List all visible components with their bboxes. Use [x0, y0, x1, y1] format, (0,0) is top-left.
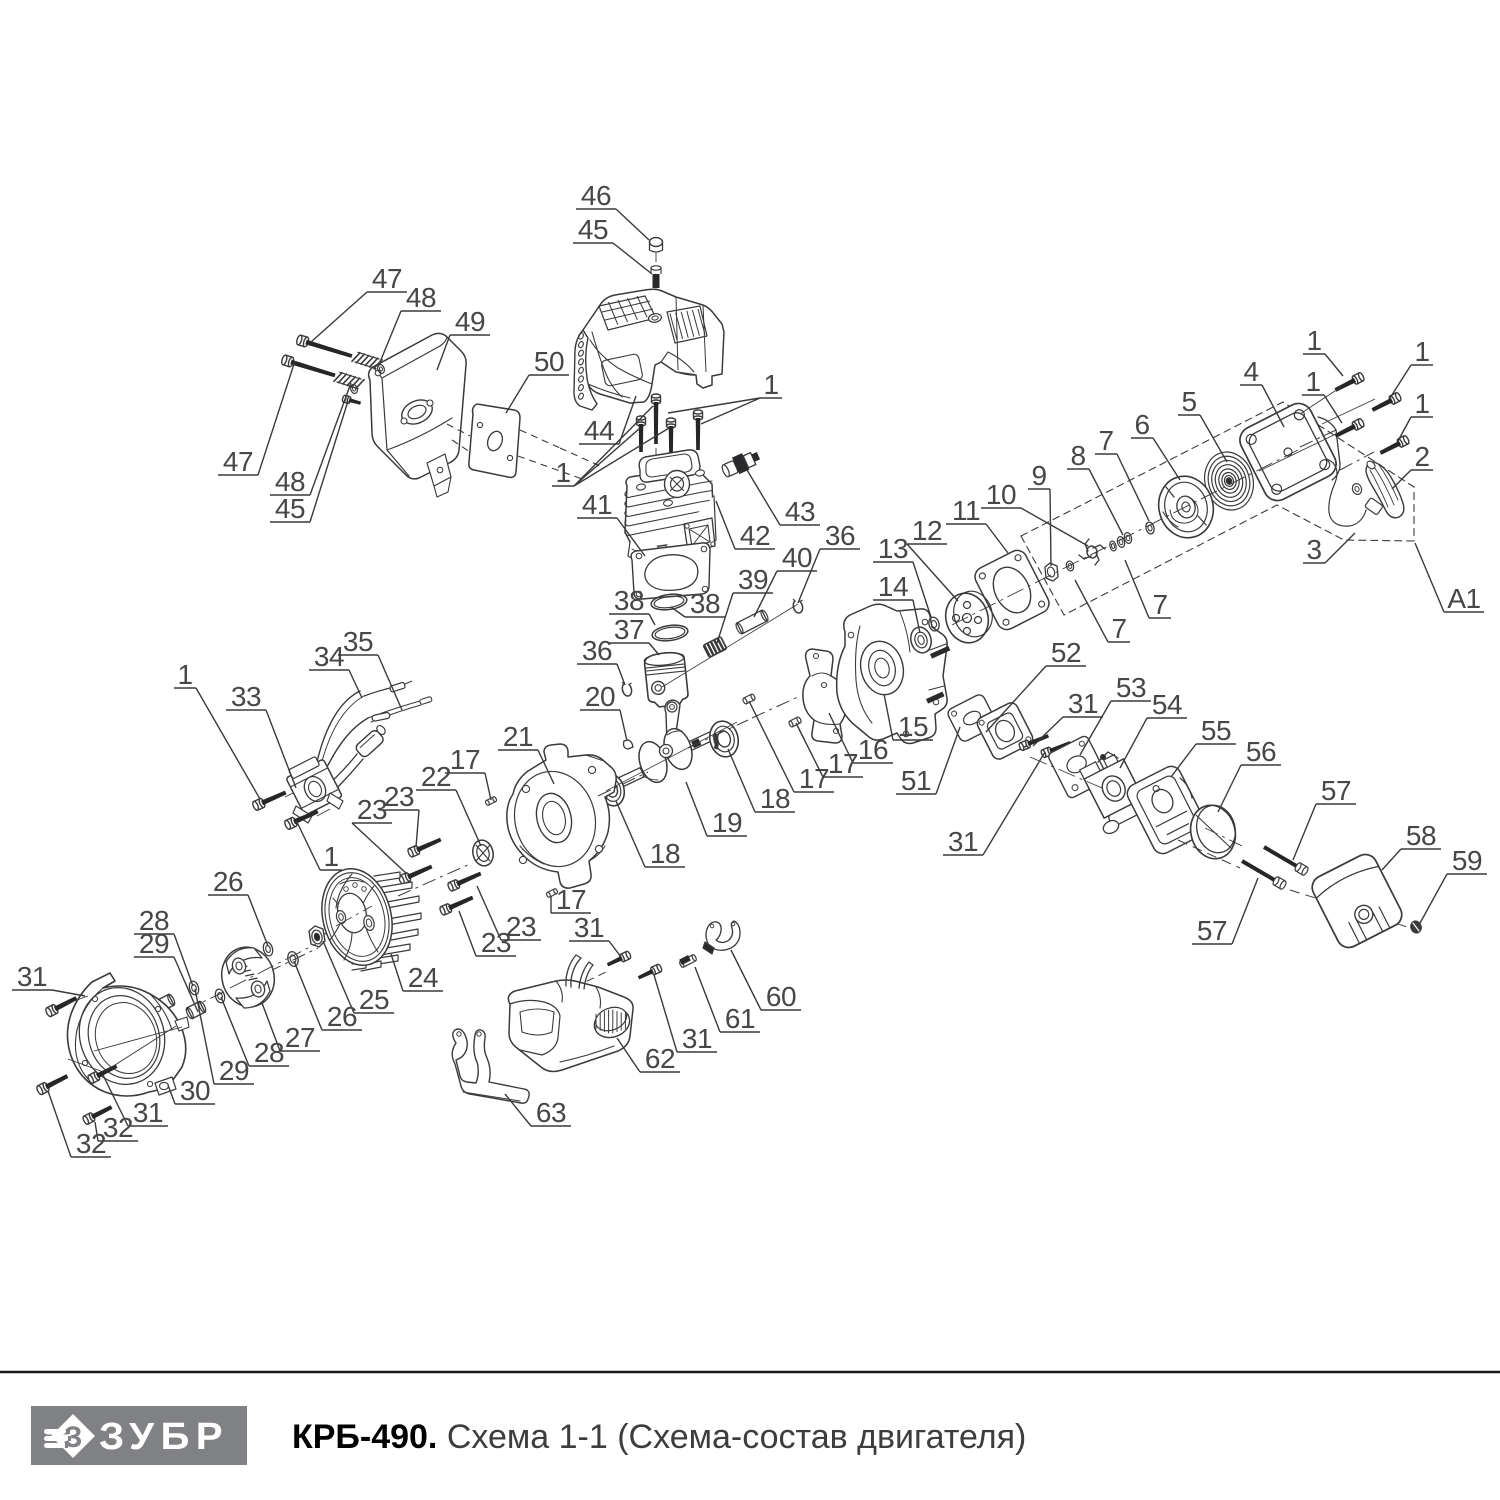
svg-text:52: 52	[1051, 637, 1081, 668]
svg-text:14: 14	[878, 571, 908, 602]
svg-text:23: 23	[357, 794, 387, 825]
svg-text:43: 43	[785, 496, 815, 527]
svg-text:24: 24	[408, 962, 438, 993]
svg-text:A1: A1	[1447, 583, 1480, 614]
svg-text:61: 61	[725, 1003, 755, 1034]
svg-text:1: 1	[1414, 336, 1429, 367]
svg-text:1: 1	[177, 659, 192, 690]
svg-text:30: 30	[180, 1075, 210, 1106]
svg-text:31: 31	[1068, 688, 1098, 719]
svg-text:49: 49	[455, 306, 485, 337]
svg-text:28: 28	[254, 1037, 284, 1068]
svg-text:59: 59	[1452, 845, 1482, 876]
svg-text:31: 31	[948, 826, 978, 857]
svg-text:9: 9	[1031, 460, 1046, 491]
svg-text:26: 26	[213, 866, 243, 897]
svg-text:2: 2	[1414, 441, 1429, 472]
svg-text:31: 31	[574, 912, 604, 943]
svg-text:46: 46	[581, 180, 611, 211]
svg-text:18: 18	[760, 783, 790, 814]
svg-text:1: 1	[1305, 366, 1320, 397]
svg-text:55: 55	[1201, 715, 1231, 746]
svg-text:56: 56	[1246, 736, 1276, 767]
svg-text:12: 12	[912, 515, 942, 546]
svg-text:29: 29	[219, 1055, 249, 1086]
svg-text:1: 1	[1306, 325, 1321, 356]
svg-text:34: 34	[314, 641, 344, 672]
svg-text:19: 19	[712, 807, 742, 838]
svg-text:40: 40	[782, 542, 812, 573]
svg-text:8: 8	[1070, 440, 1085, 471]
svg-text:35: 35	[343, 626, 373, 657]
svg-text:38: 38	[614, 585, 644, 616]
svg-text:3: 3	[1306, 534, 1321, 565]
svg-text:22: 22	[421, 761, 451, 792]
svg-text:7: 7	[1111, 613, 1126, 644]
svg-text:51: 51	[901, 765, 931, 796]
svg-text:57: 57	[1321, 775, 1351, 806]
svg-text:13: 13	[878, 533, 908, 564]
svg-text:1: 1	[1414, 388, 1429, 419]
svg-text:26: 26	[327, 1001, 357, 1032]
svg-text:1: 1	[763, 369, 778, 400]
svg-text:36: 36	[582, 635, 612, 666]
svg-text:6: 6	[1134, 409, 1149, 440]
svg-text:58: 58	[1406, 820, 1436, 851]
svg-text:1: 1	[323, 841, 338, 872]
svg-text:31: 31	[682, 1023, 712, 1054]
svg-text:17: 17	[799, 763, 829, 794]
svg-text:20: 20	[585, 681, 615, 712]
svg-text:54: 54	[1152, 689, 1182, 720]
svg-text:38: 38	[690, 588, 720, 619]
svg-text:53: 53	[1116, 672, 1146, 703]
svg-text:7: 7	[1152, 589, 1167, 620]
svg-text:33: 33	[231, 681, 261, 712]
svg-text:45: 45	[275, 493, 305, 524]
svg-text:31: 31	[17, 961, 47, 992]
svg-text:КРБ-490. Схема 1-1 (Схема-сост: КРБ-490. Схема 1-1 (Схема-состав двигате…	[292, 1418, 1026, 1456]
svg-text:60: 60	[766, 981, 796, 1012]
svg-text:36: 36	[825, 520, 855, 551]
svg-text:48: 48	[406, 282, 436, 313]
svg-text:23: 23	[384, 781, 414, 812]
svg-text:10: 10	[986, 479, 1016, 510]
svg-text:17: 17	[828, 748, 858, 779]
svg-text:5: 5	[1181, 386, 1196, 417]
svg-text:44: 44	[584, 415, 614, 446]
svg-text:62: 62	[645, 1043, 675, 1074]
svg-text:29: 29	[139, 928, 169, 959]
svg-text:37: 37	[614, 614, 644, 645]
svg-text:31: 31	[133, 1097, 163, 1128]
svg-text:4: 4	[1243, 356, 1258, 387]
svg-text:39: 39	[738, 564, 768, 595]
svg-text:17: 17	[450, 744, 480, 775]
svg-text:32: 32	[103, 1112, 133, 1143]
svg-text:7: 7	[1098, 425, 1113, 456]
svg-text:1: 1	[555, 457, 570, 488]
svg-text:41: 41	[582, 489, 612, 520]
svg-text:25: 25	[359, 984, 389, 1015]
svg-text:17: 17	[556, 884, 586, 915]
svg-text:ЗУБР: ЗУБР	[99, 1416, 229, 1458]
svg-text:47: 47	[372, 263, 402, 294]
svg-text:47: 47	[223, 446, 253, 477]
svg-text:21: 21	[503, 721, 533, 752]
svg-text:42: 42	[740, 520, 770, 551]
svg-text:18: 18	[650, 838, 680, 869]
svg-text:50: 50	[534, 346, 564, 377]
svg-text:15: 15	[898, 711, 928, 742]
svg-text:45: 45	[578, 214, 608, 245]
svg-text:57: 57	[1197, 915, 1227, 946]
svg-text:16: 16	[858, 734, 888, 765]
svg-text:32: 32	[76, 1128, 106, 1159]
svg-text:11: 11	[952, 495, 980, 526]
svg-text:63: 63	[536, 1097, 566, 1128]
svg-text:23: 23	[481, 927, 511, 958]
svg-text:27: 27	[285, 1022, 315, 1053]
